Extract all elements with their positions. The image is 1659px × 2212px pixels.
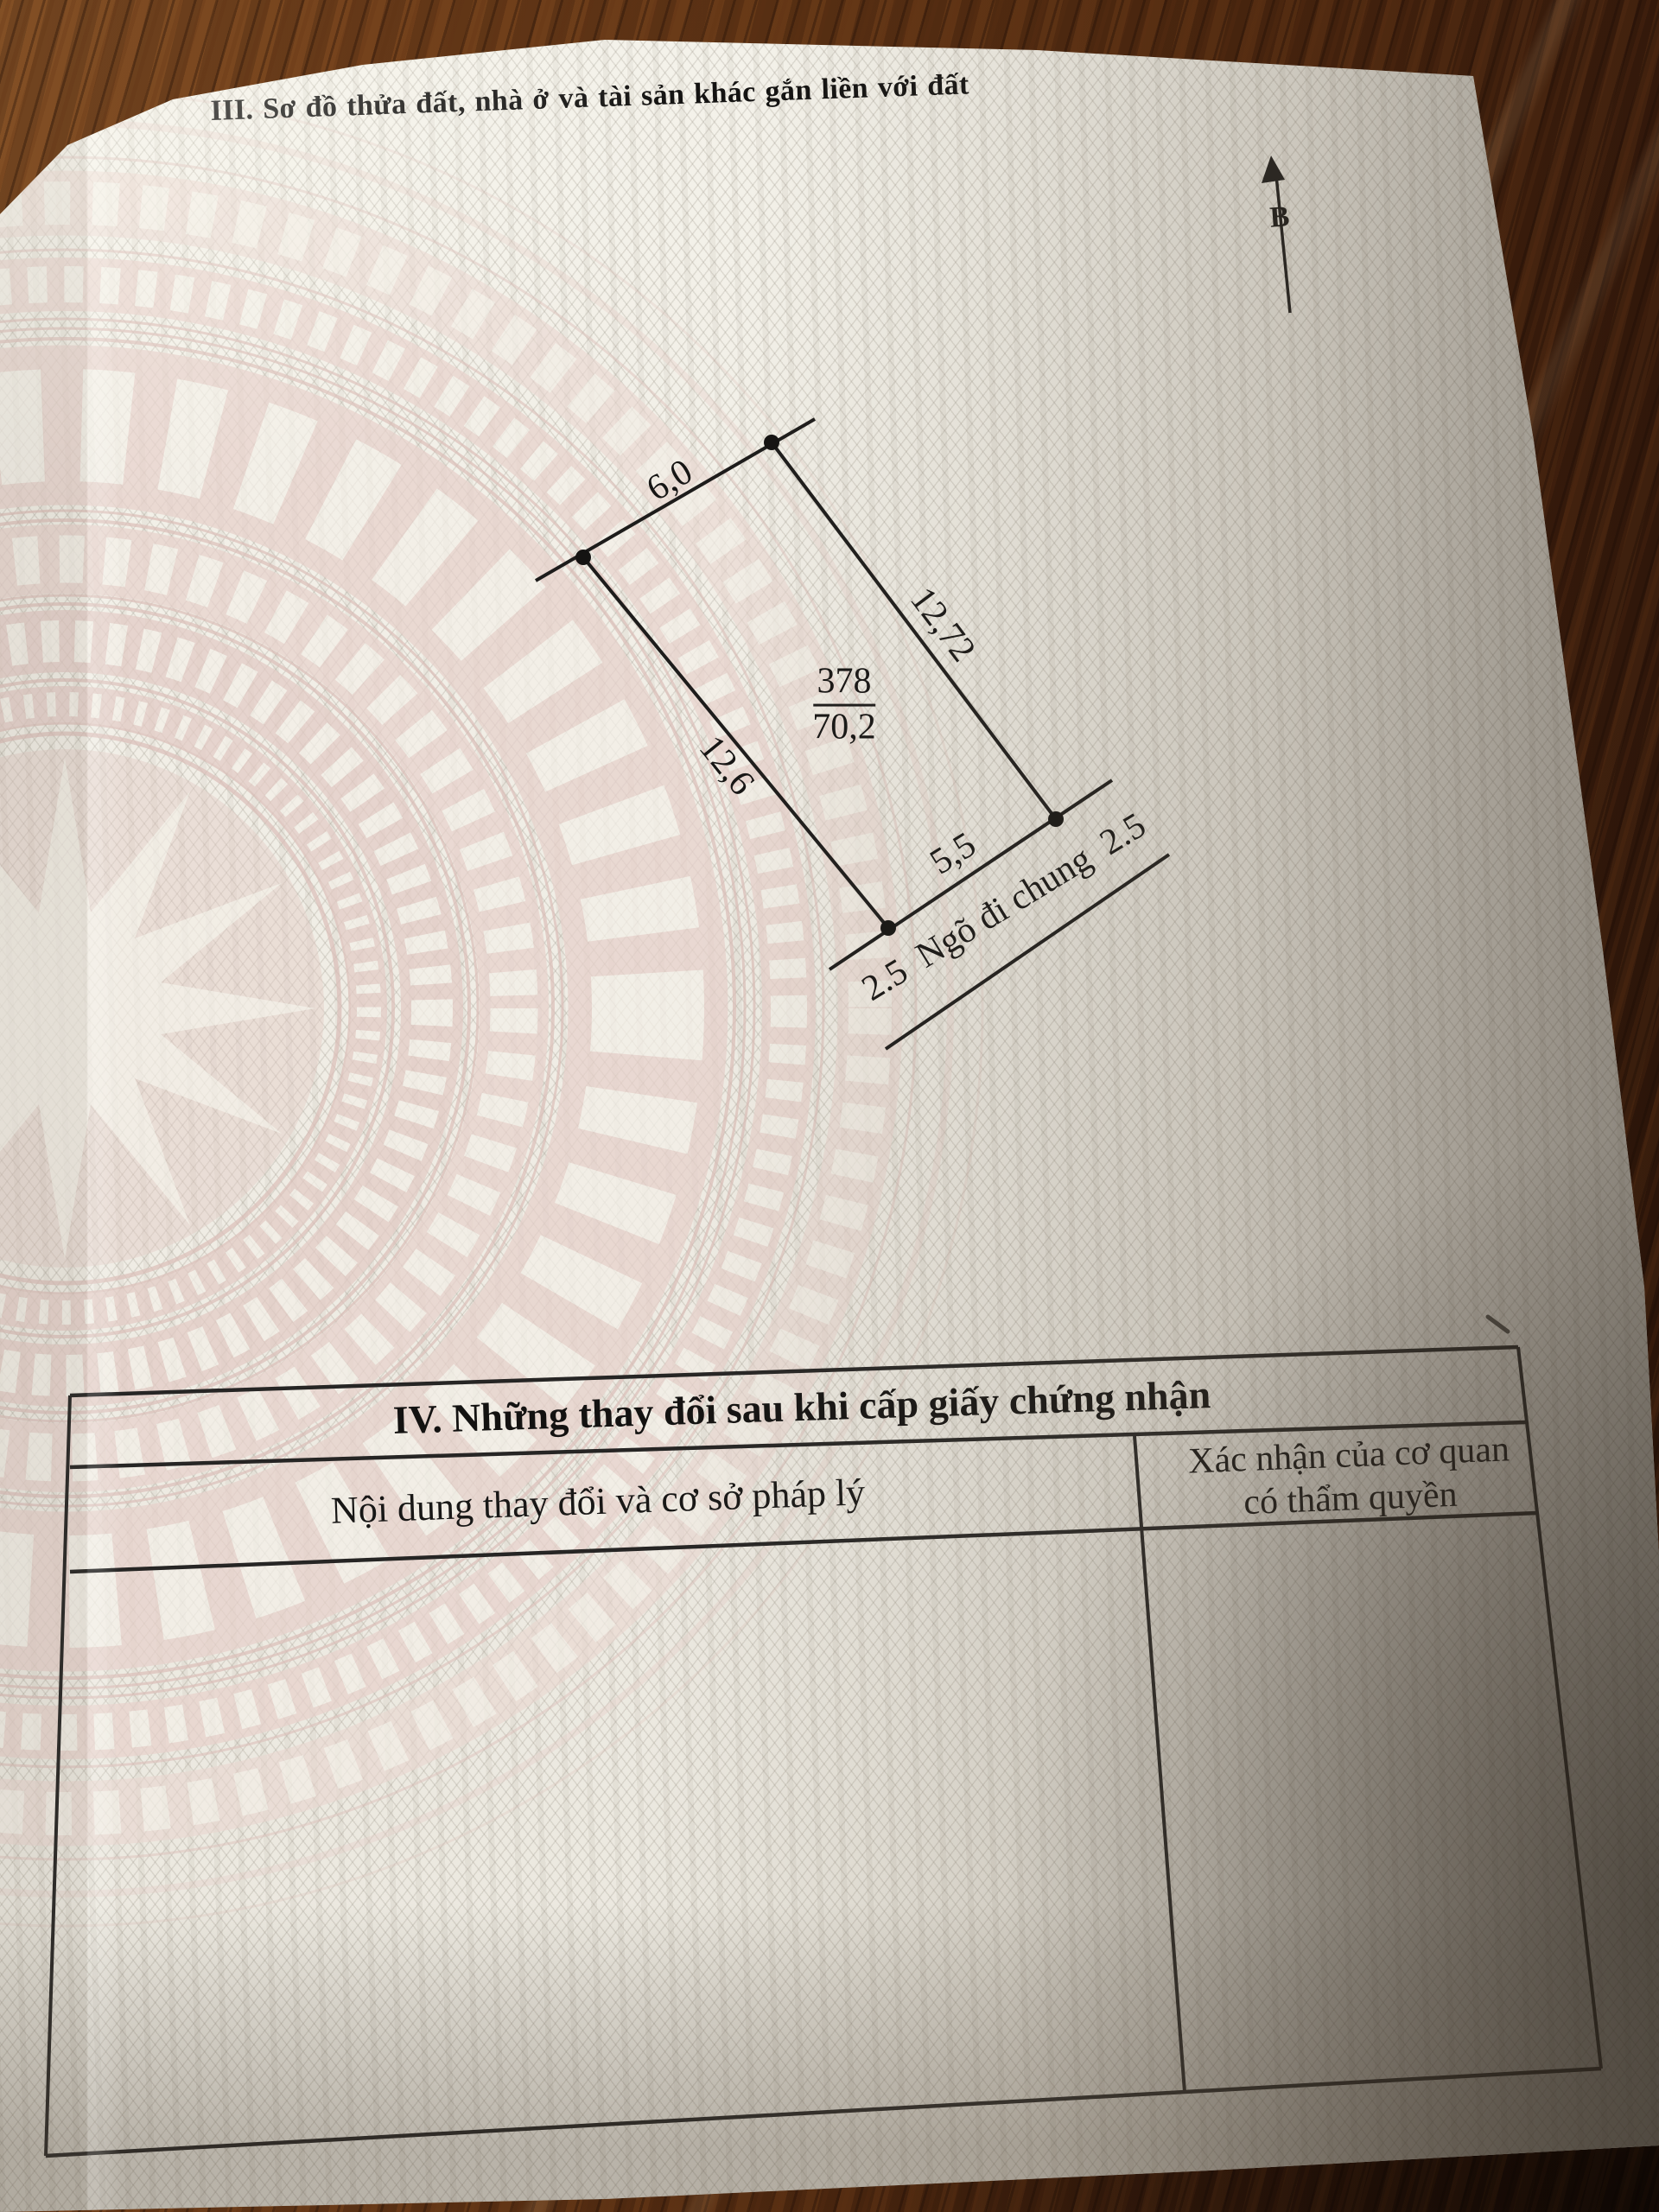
north-arrow-icon <box>1262 156 1290 313</box>
parcel-area-label: 70,2 <box>812 709 876 747</box>
document-page: III. Sơ đồ thửa đất, nhà ở và tài sản kh… <box>0 0 1659 2212</box>
north-label: B <box>1268 202 1290 232</box>
photographed-land-certificate: III. Sơ đồ thửa đất, nhà ở và tài sản kh… <box>0 0 1659 2212</box>
parcel-edge-right-line <box>772 442 1056 819</box>
table-column-divider <box>1135 1436 1185 2092</box>
parcel-corner-dot <box>1048 811 1064 827</box>
table-left-border <box>46 1395 70 2156</box>
fraction-bar <box>813 703 875 707</box>
parcel-number-area-group: 378 70,2 <box>812 664 876 747</box>
table-bottom-border <box>46 2069 1601 2156</box>
table-header-underline <box>70 1513 1537 1572</box>
parcel-corner-dot <box>764 435 779 450</box>
table-column-header-confirmation: Xác nhận của cơ quan có thẩm quyền <box>1187 1428 1512 1526</box>
parcel-number-label: 378 <box>817 664 872 702</box>
pen-tick-mark <box>1488 1317 1508 1332</box>
parcel-corner-dot <box>575 550 591 565</box>
table-right-border <box>1518 1347 1601 2069</box>
parcel-corner-dot <box>880 920 896 936</box>
ink-layer <box>0 0 1659 2212</box>
